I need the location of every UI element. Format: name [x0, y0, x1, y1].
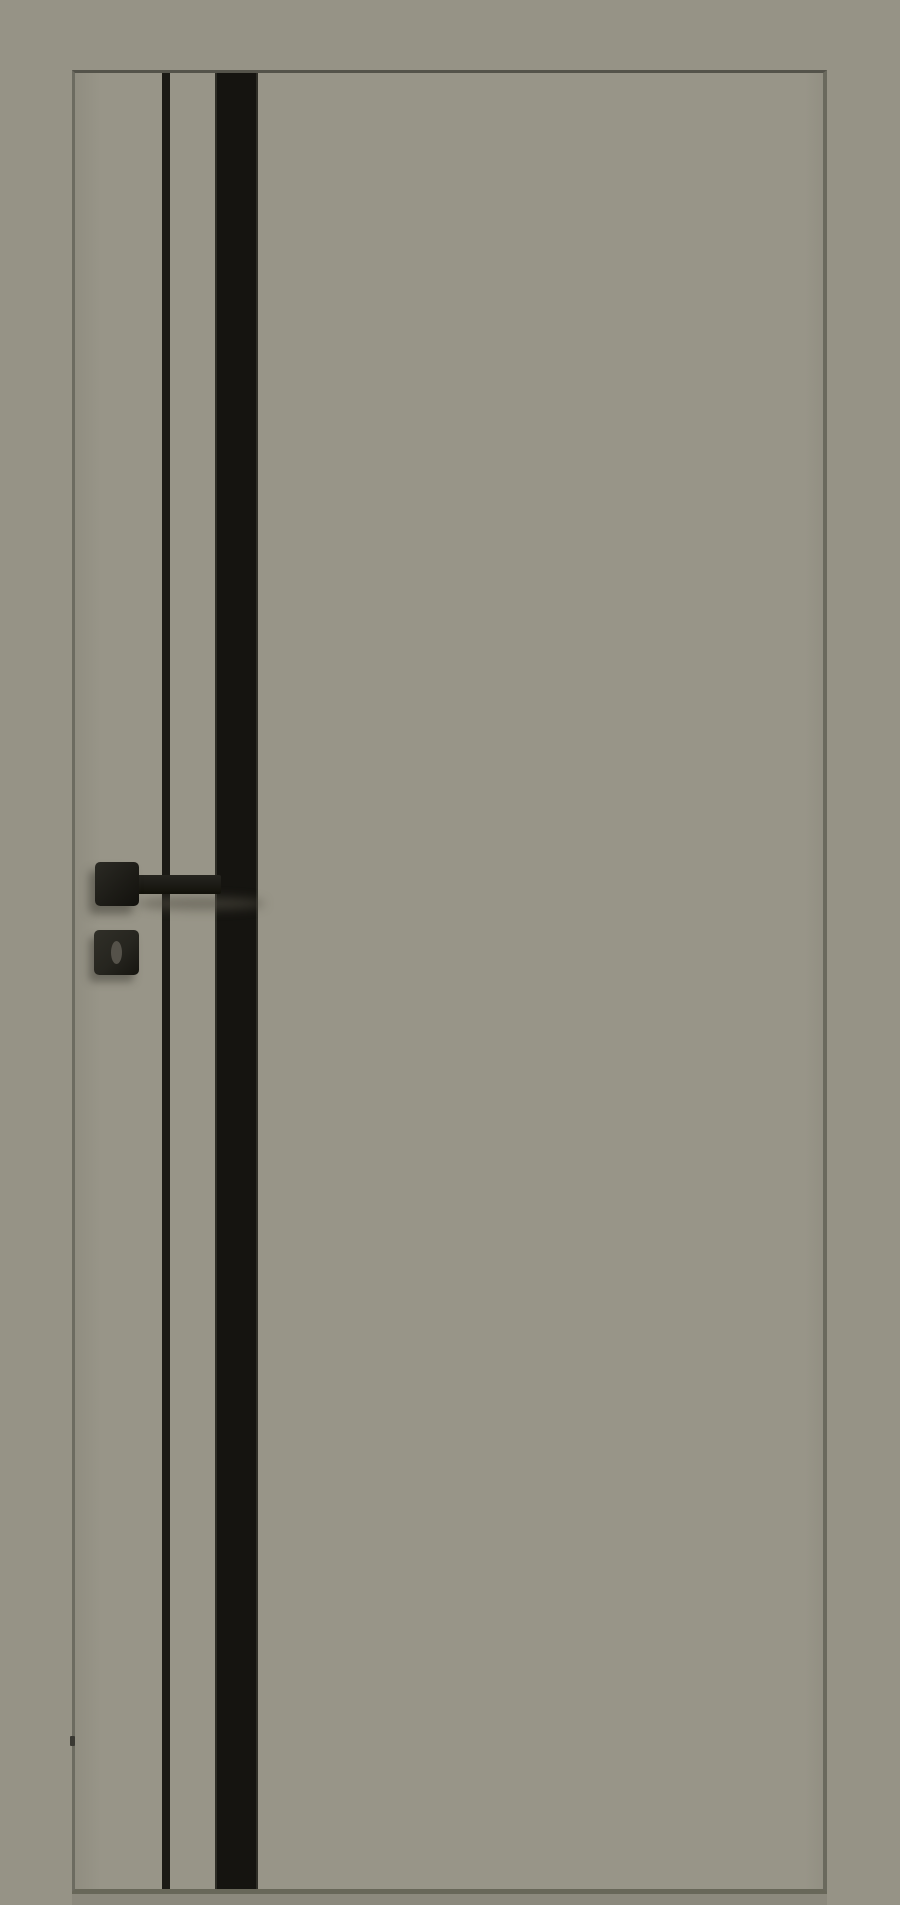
thumbturn-slot	[111, 941, 122, 964]
door-leaf	[72, 70, 827, 1892]
black-molding-stripe	[162, 73, 170, 1889]
wc-thumbturn-escutcheon	[94, 930, 139, 975]
black-glass-insert	[215, 73, 258, 1889]
studio-background	[0, 0, 900, 1905]
door-handle-rose	[95, 862, 139, 906]
floor-shadow-band	[72, 1892, 827, 1905]
magnetic-latch-mark	[70, 1736, 75, 1746]
door-handle-lever	[133, 875, 221, 894]
lever-shadow	[137, 897, 265, 910]
